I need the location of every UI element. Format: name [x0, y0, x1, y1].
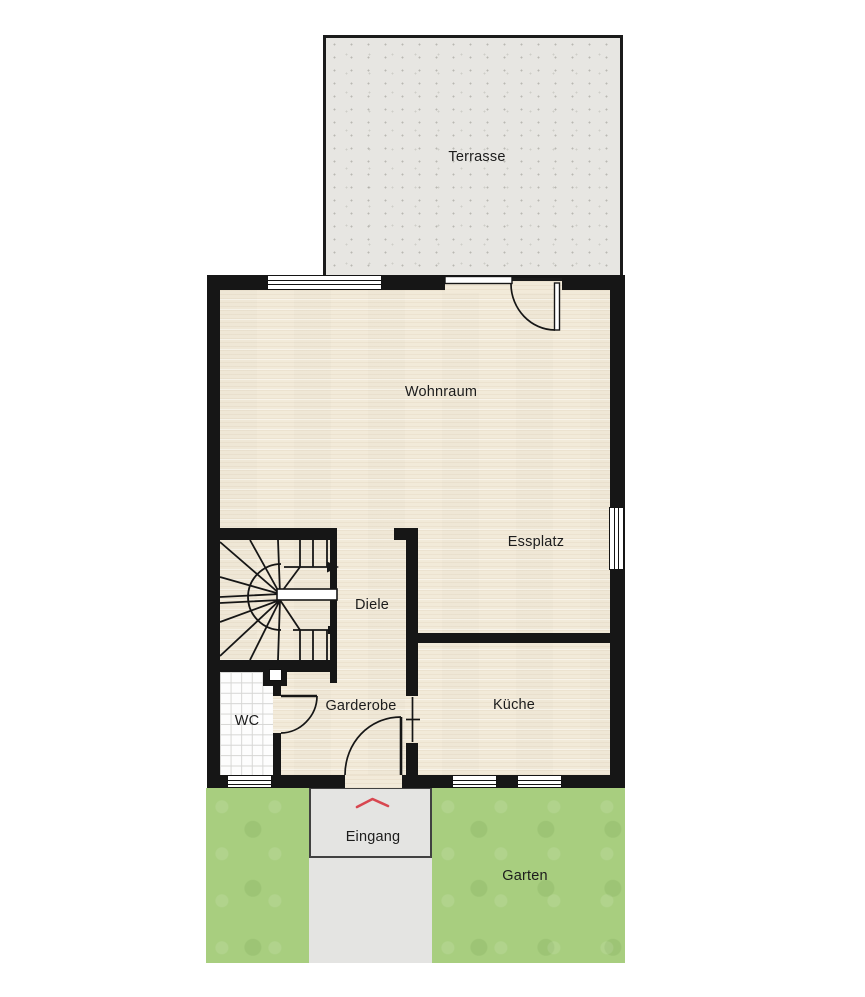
duct-opening [269, 669, 282, 681]
label-diele: Diele [355, 597, 389, 613]
wall-center [406, 528, 418, 696]
entrance-porch [309, 787, 432, 858]
window-kueche-1 [452, 775, 497, 788]
label-terrasse: Terrasse [448, 149, 505, 165]
label-garderobe: Garderobe [325, 698, 396, 714]
terrace-door-opening [445, 278, 562, 293]
label-kueche: Küche [493, 697, 535, 713]
wall-center-lower [406, 743, 418, 775]
entrance-door-opening [345, 775, 402, 788]
window-essplatz [609, 507, 624, 570]
window-wohnraum [267, 275, 382, 290]
garden-area-left [206, 788, 309, 963]
label-wohnraum: Wohnraum [405, 384, 477, 400]
window-wc [227, 775, 272, 788]
wall-stair-north [207, 528, 337, 540]
wall-wc-east-upper [273, 684, 281, 696]
label-essplatz: Essplatz [508, 534, 564, 550]
floorplan-canvas: Terrasse Wohnraum Essplatz Diele WC Gard… [0, 0, 865, 997]
label-eingang: Eingang [346, 829, 401, 845]
wall-wc-east-lower [273, 733, 281, 775]
wall-kueche-north [406, 633, 610, 643]
window-kueche-2 [517, 775, 562, 788]
label-wc: WC [235, 713, 260, 729]
label-garten: Garten [502, 868, 548, 884]
